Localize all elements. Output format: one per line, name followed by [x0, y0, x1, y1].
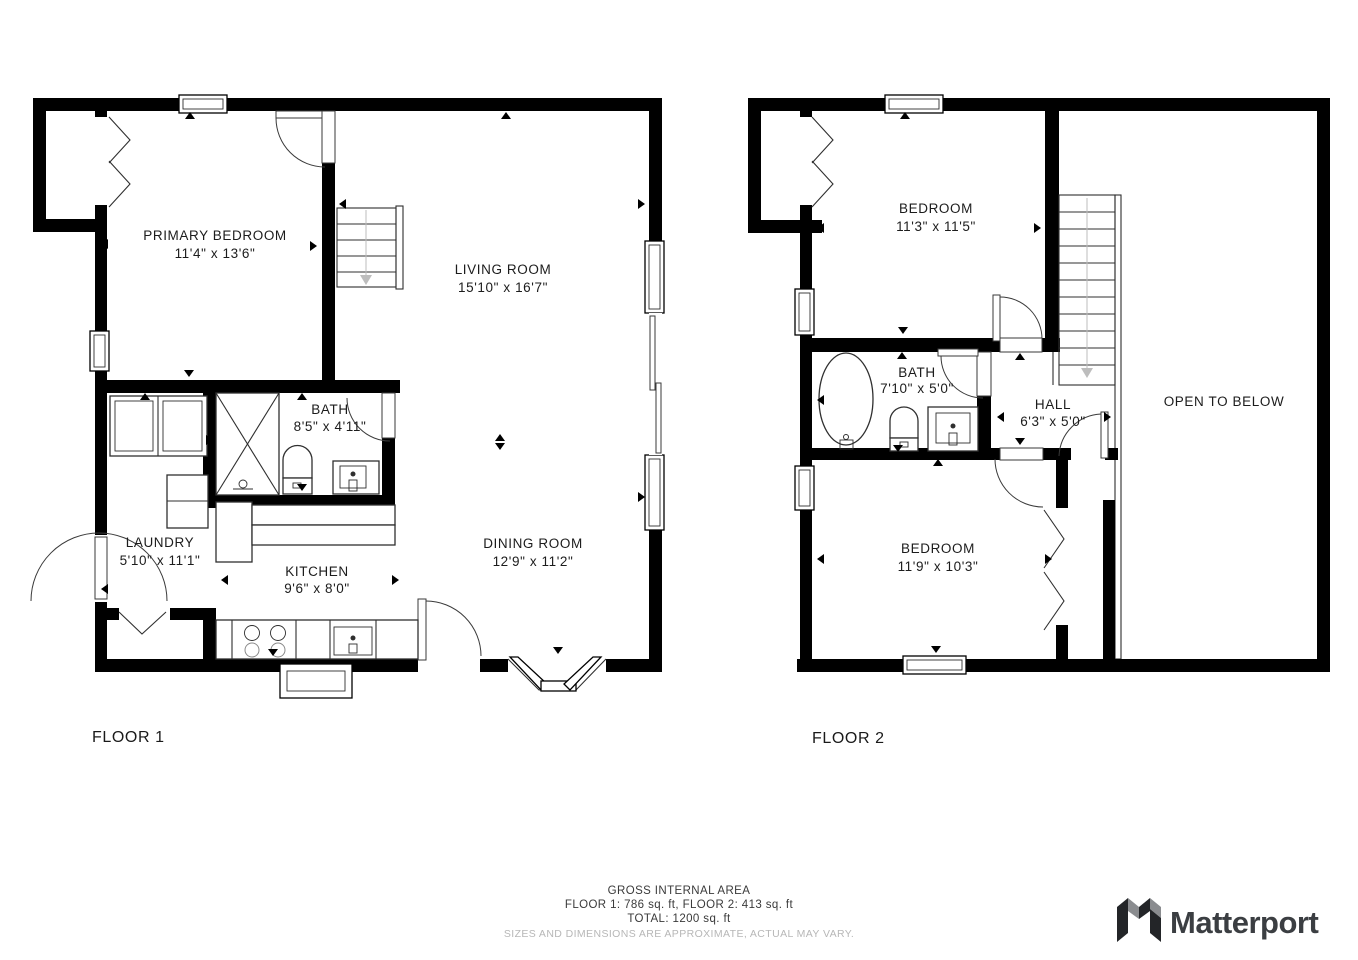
- fridge-icon: [216, 502, 252, 562]
- closet-bifold-icon: [1044, 510, 1064, 630]
- room-dims: 8'5" x 4'11": [294, 419, 367, 434]
- floorplan-page: PRIMARY BEDROOM 11'4" x 13'6" LIVING ROO…: [0, 0, 1358, 960]
- room-dims: 6'3" x 5'0": [1020, 414, 1086, 429]
- stairs-icon: [337, 206, 403, 289]
- room-dims: 11'3" x 11'5": [896, 219, 976, 234]
- floor1-label: FLOOR 1: [92, 729, 165, 746]
- floor-areas-line: FLOOR 1: 786 sq. ft, FLOOR 2: 413 sq. ft: [565, 899, 794, 911]
- room-label: HALL: [1035, 397, 1071, 412]
- washer-dryer-icon: [110, 396, 208, 528]
- room-label: BEDROOM: [901, 541, 975, 556]
- room-label: BATH: [898, 365, 935, 380]
- door-icon: [938, 295, 1108, 507]
- stair-rail: [1115, 195, 1121, 659]
- room-label: LIVING ROOM: [455, 262, 552, 277]
- room-label: BEDROOM: [899, 201, 973, 216]
- matterport-logo-text: Matterport: [1170, 905, 1318, 940]
- room-dims: 11'4" x 13'6": [175, 246, 256, 261]
- floor1-plan: PRIMARY BEDROOM 11'4" x 13'6" LIVING ROO…: [31, 95, 664, 746]
- room-label: LAUNDRY: [126, 535, 194, 550]
- room-label: KITCHEN: [285, 564, 348, 579]
- matterport-logo: Matterport: [1117, 898, 1318, 942]
- bathroom-sink-icon: [928, 407, 978, 451]
- kitchen-window-icon: [280, 664, 352, 698]
- room-label: DINING ROOM: [483, 536, 583, 551]
- room-dims: 7'10" x 5'0": [880, 381, 954, 396]
- disclaimer-text: SIZES AND DIMENSIONS ARE APPROXIMATE, AC…: [504, 928, 854, 940]
- room-label: BATH: [311, 402, 348, 417]
- bathtub-icon: [819, 353, 873, 449]
- closet-bifold-icon: [109, 117, 130, 207]
- gross-internal-area-title: GROSS INTERNAL AREA: [608, 885, 751, 897]
- room-label: PRIMARY BEDROOM: [143, 228, 287, 243]
- room-dims: 12'9" x 11'2": [493, 554, 574, 569]
- floor2-plan: BEDROOM 11'3" x 11'5" BATH 7'10" x 5'0" …: [748, 95, 1330, 747]
- stairs-icon: [1053, 195, 1115, 385]
- room-dims: 15'10" x 16'7": [458, 280, 548, 295]
- bay-window-icon: [508, 657, 606, 691]
- room-dims: 5'10" x 11'1": [120, 553, 201, 568]
- footer-area-summary: GROSS INTERNAL AREA FLOOR 1: 786 sq. ft,…: [504, 885, 854, 940]
- total-area-line: TOTAL: 1200 sq. ft: [627, 913, 731, 925]
- floorplan-canvas: PRIMARY BEDROOM 11'4" x 13'6" LIVING ROO…: [0, 0, 1358, 960]
- toilet-icon: [283, 446, 312, 495]
- sliding-door-icon: [649, 313, 662, 455]
- closet-bifold-icon: [812, 117, 833, 207]
- floor2-label: FLOOR 2: [812, 730, 885, 747]
- shower-icon: [216, 393, 279, 495]
- bathroom-sink-icon: [333, 461, 379, 494]
- room-dims: 11'9" x 10'3": [898, 559, 979, 574]
- toilet-icon: [890, 407, 918, 451]
- room-dims: 9'6" x 8'0": [284, 581, 350, 596]
- room-label: OPEN TO BELOW: [1164, 394, 1285, 409]
- matterport-logo-icon: [1117, 898, 1161, 942]
